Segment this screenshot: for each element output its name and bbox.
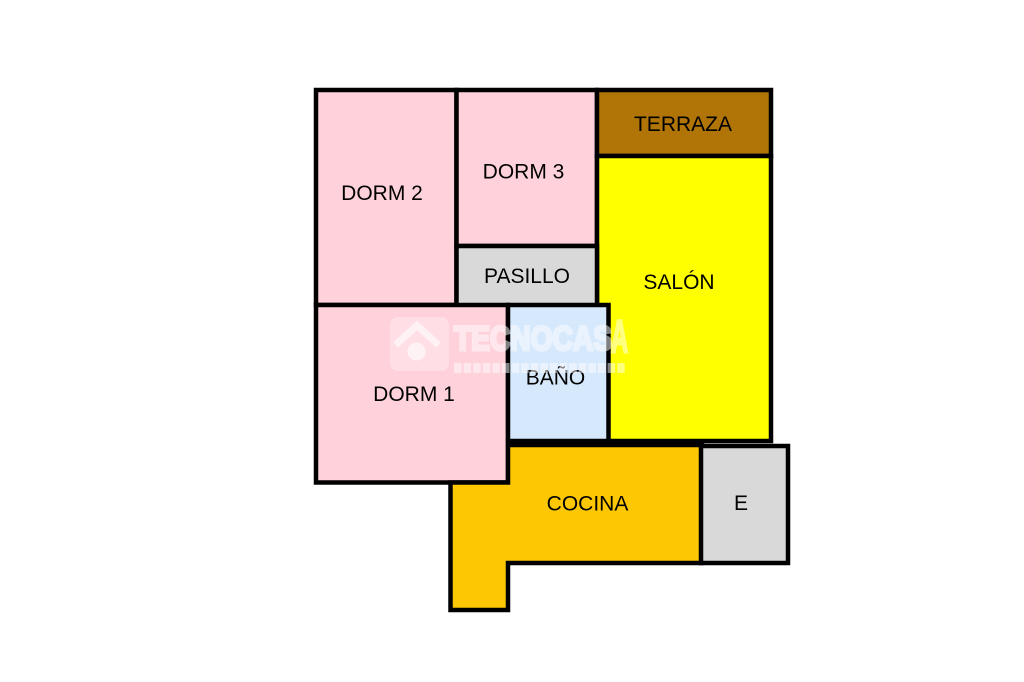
svg-text:A: A xyxy=(611,311,628,362)
svg-text:E: E xyxy=(734,492,748,515)
svg-text:DORM 2: DORM 2 xyxy=(341,182,423,205)
svg-text:TECNOCAS: TECNOCAS xyxy=(454,320,612,358)
svg-text:COCINA: COCINA xyxy=(547,493,629,516)
svg-text:DORM 1: DORM 1 xyxy=(373,383,455,406)
svg-text:DORM 3: DORM 3 xyxy=(483,161,565,184)
svg-text:SALÓN: SALÓN xyxy=(643,271,714,294)
svg-text:TERRAZA: TERRAZA xyxy=(634,113,732,136)
svg-text:PASILLO: PASILLO xyxy=(484,265,570,288)
